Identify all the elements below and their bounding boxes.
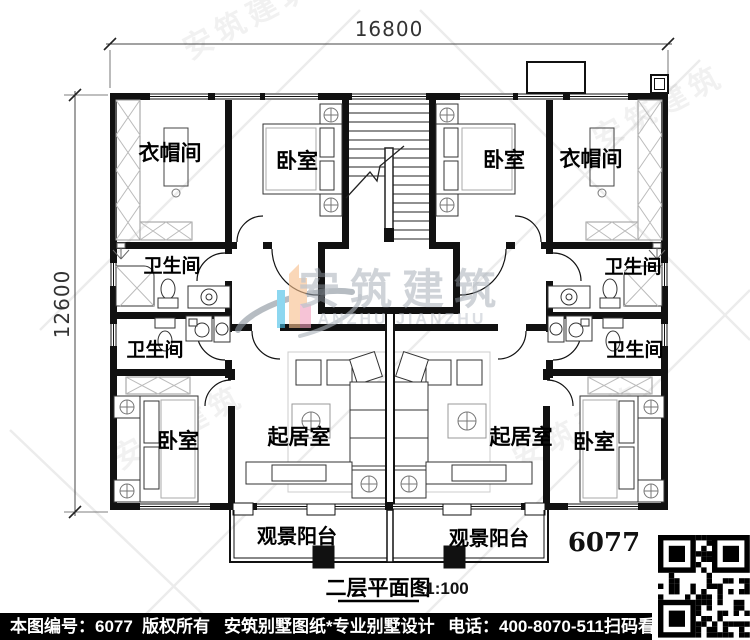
party-wall — [386, 313, 394, 562]
room-label-bedroom-bottom-left: 卧室 — [157, 429, 199, 453]
faint-watermark-text: 安筑建筑 — [177, 0, 320, 66]
tv — [272, 465, 326, 481]
qr-code — [652, 530, 750, 640]
wall-pier — [307, 504, 335, 515]
side-table — [327, 360, 352, 385]
stair-newel — [384, 228, 394, 242]
watermark-en-text: ANZHU JIANZHU — [318, 311, 487, 328]
footer-sheet-no: 本图编号：6077 — [10, 616, 133, 636]
balcony-column — [313, 546, 334, 568]
footer-phone: 电话：400-8070-511 — [448, 616, 604, 636]
stair-stringer — [385, 148, 393, 240]
dimension-height-value: 12600 — [50, 270, 74, 339]
unit-right-floorplan — [389, 93, 668, 568]
stair-break-line — [346, 146, 404, 198]
sofa — [350, 382, 386, 466]
toilet — [161, 279, 175, 299]
floor-plan-canvas: 安筑建筑 安筑建筑 安筑建筑 安筑建筑 16800 12600 — [0, 0, 750, 640]
pillow — [144, 447, 159, 489]
plan-number: 6077 — [568, 528, 640, 558]
living-room-furniture — [246, 352, 388, 498]
room-label-bedroom-top-left: 卧室 — [276, 149, 318, 173]
title-block: 二层平面图 1:100 — [326, 577, 469, 601]
washer — [186, 316, 212, 341]
footer-bar: 本图编号：6077 版权所有 安筑别墅图纸*专业别墅设计 电话：400-8070… — [0, 613, 750, 640]
footer-copyright: 版权所有 — [142, 616, 210, 636]
window-left-2 — [110, 324, 117, 346]
pillow — [320, 161, 334, 190]
room-label-balcony-right: 观景阳台 — [449, 526, 529, 550]
dimension-width-value: 16800 — [355, 17, 424, 41]
room-label-bedroom-top-right: 卧室 — [483, 148, 525, 172]
chimney — [651, 75, 668, 93]
room-label-cloakroom-left: 衣帽间 — [139, 141, 202, 165]
roof-dormer — [527, 62, 585, 93]
logo-bar-blue — [277, 290, 285, 328]
room-label-bedroom-bottom-right: 卧室 — [573, 430, 615, 454]
armchair — [350, 352, 383, 385]
side-table — [296, 360, 321, 385]
staircase — [346, 104, 429, 242]
room-label-bathroom-bottom-right: 卫生间 — [606, 338, 663, 361]
center-watermark: 安筑建筑 ANZHU JIANZHU — [238, 264, 506, 336]
window-top-1 — [150, 93, 208, 100]
dimension-left: 12600 — [50, 89, 108, 518]
door-bedroom-top — [237, 216, 263, 242]
room-label-bathroom-bottom-left: 卫生间 — [126, 338, 183, 361]
faint-watermark-text: 安筑建筑 — [587, 59, 730, 157]
pillow — [320, 128, 334, 157]
room-label-cloakroom-right: 衣帽间 — [560, 147, 623, 171]
drawing-scale: 1:100 — [425, 579, 468, 598]
door-living-room — [252, 331, 280, 359]
footer-brand: 安筑别墅图纸*专业别墅设计 — [224, 616, 435, 636]
watermark-cn-text: 安筑建筑 — [298, 266, 506, 313]
room-label-balcony-left: 观景阳台 — [257, 524, 337, 548]
window-bottom-bedroom — [140, 503, 210, 510]
floor-plan-sheet: 安筑建筑 安筑建筑 安筑建筑 安筑建筑 16800 12600 — [0, 0, 750, 640]
window-top-2 — [215, 93, 260, 100]
room-label-living-left: 起居室 — [267, 425, 331, 449]
wall-pier — [233, 503, 253, 515]
window-stair — [352, 93, 389, 100]
room-label-living-right: 起居室 — [489, 425, 553, 449]
room-label-bathroom-top-left: 卫生间 — [143, 254, 200, 277]
room-label-bathroom-top-right: 卫生间 — [604, 255, 661, 278]
drawing-title: 二层平面图 — [326, 577, 431, 600]
cloakroom-wardrobes — [116, 100, 192, 240]
window-top-3 — [265, 93, 318, 100]
door-bathroom-1 — [197, 253, 225, 281]
